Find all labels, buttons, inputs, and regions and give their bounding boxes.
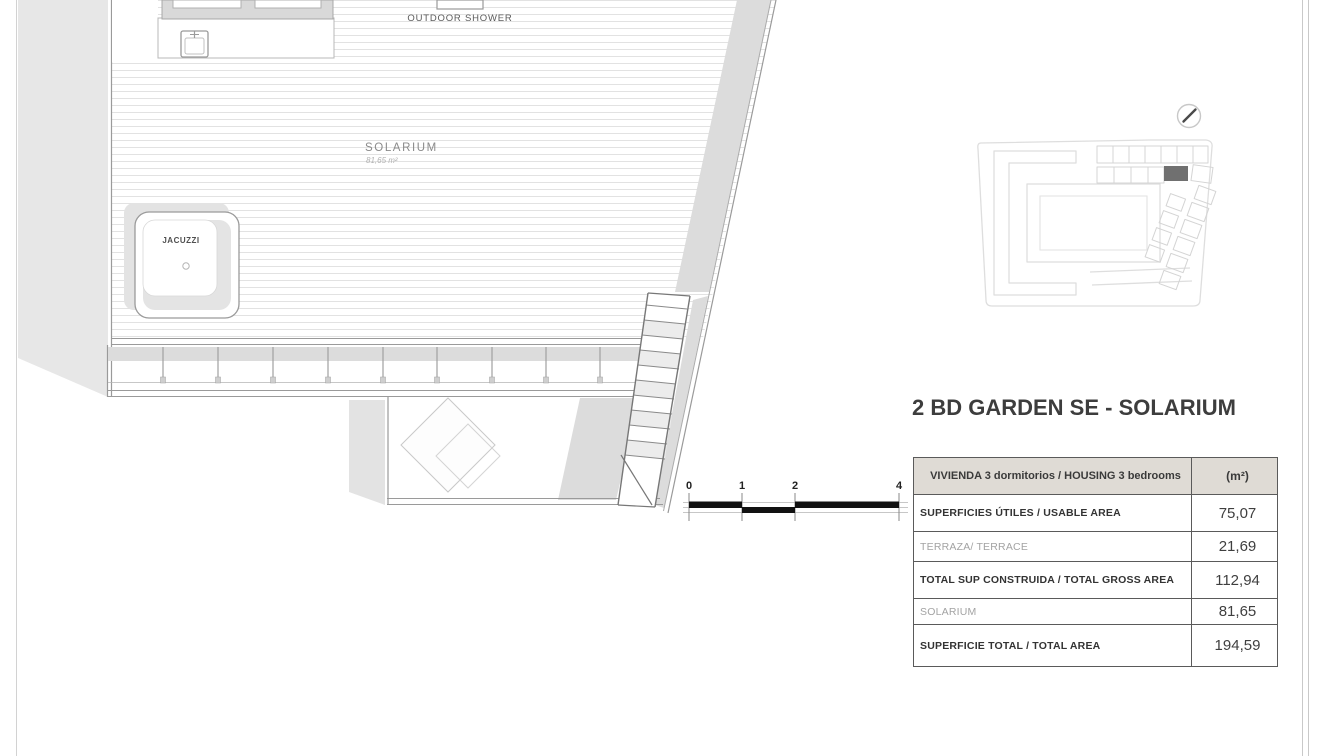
north-compass-icon [1178,105,1201,128]
drawing-sheet: OUTDOOR SHOWER SOLARIUM 81,65 m² JACUZZI [0,0,1319,756]
site-inner-loop [994,151,1076,295]
table-row: TERRAZA/ TERRACE 21,69 [914,532,1278,562]
site-map [978,105,1216,307]
table-row: SUPERFICIES ÚTILES / USABLE AREA 75,07 [914,495,1278,532]
outdoor-shower-label: OUTDOOR SHOWER [407,13,512,24]
site-units-second-row [1097,165,1213,184]
row-label: TOTAL SUP CONSTRUIDA / TOTAL GROSS AREA [914,562,1192,599]
scale-bar: 0 1 2 4 [683,480,908,521]
row-label: TERRAZA/ TERRACE [914,532,1192,562]
table-row: TOTAL SUP CONSTRUIDA / TOTAL GROSS AREA … [914,562,1278,599]
terrace-left-shadow [349,400,385,505]
solarium-label: SOLARIUM [365,142,438,154]
row-value: 194,59 [1192,625,1278,667]
lounger [401,398,500,492]
sink-icon [181,31,208,57]
solarium-area-label: 81,65 m² [366,156,398,165]
outdoor-kitchen [112,0,334,62]
scale-tick-1: 1 [739,480,745,492]
scale-tick-0: 0 [686,480,692,492]
lower-terrace [349,397,663,505]
shower-tray [437,0,483,9]
table-header-unit: (m²) [1192,458,1278,495]
site-units-top-row [1097,146,1208,163]
jacuzzi: JACUZZI [124,203,239,318]
table-header-row: VIVIENDA 3 dormitorios / HOUSING 3 bedro… [914,458,1278,495]
jacuzzi-label: JACUZZI [162,236,199,245]
highlighted-unit [1164,166,1188,181]
row-label: SUPERFICIES ÚTILES / USABLE AREA [914,495,1192,532]
pergola-strip [107,345,644,397]
site-central-block-inner [1040,196,1147,250]
row-value: 21,69 [1192,532,1278,562]
row-value: 81,65 [1192,599,1278,625]
scale-tick-2: 2 [792,480,798,492]
row-label: SUPERFICIE TOTAL / TOTAL AREA [914,625,1192,667]
table-row: SUPERFICIE TOTAL / TOTAL AREA 194,59 [914,625,1278,667]
page-title: 2 BD GARDEN SE - SOLARIUM [912,395,1236,421]
table-row: SOLARIUM 81,65 [914,599,1278,625]
row-value: 75,07 [1192,495,1278,532]
areas-table: VIVIENDA 3 dormitorios / HOUSING 3 bedro… [913,457,1278,667]
row-value: 112,94 [1192,562,1278,599]
scale-tick-4: 4 [896,480,903,492]
left-shadow [18,0,108,397]
table-header-label: VIVIENDA 3 dormitorios / HOUSING 3 bedro… [914,458,1192,495]
jacuzzi-drain [183,263,189,269]
row-label: SOLARIUM [914,599,1192,625]
